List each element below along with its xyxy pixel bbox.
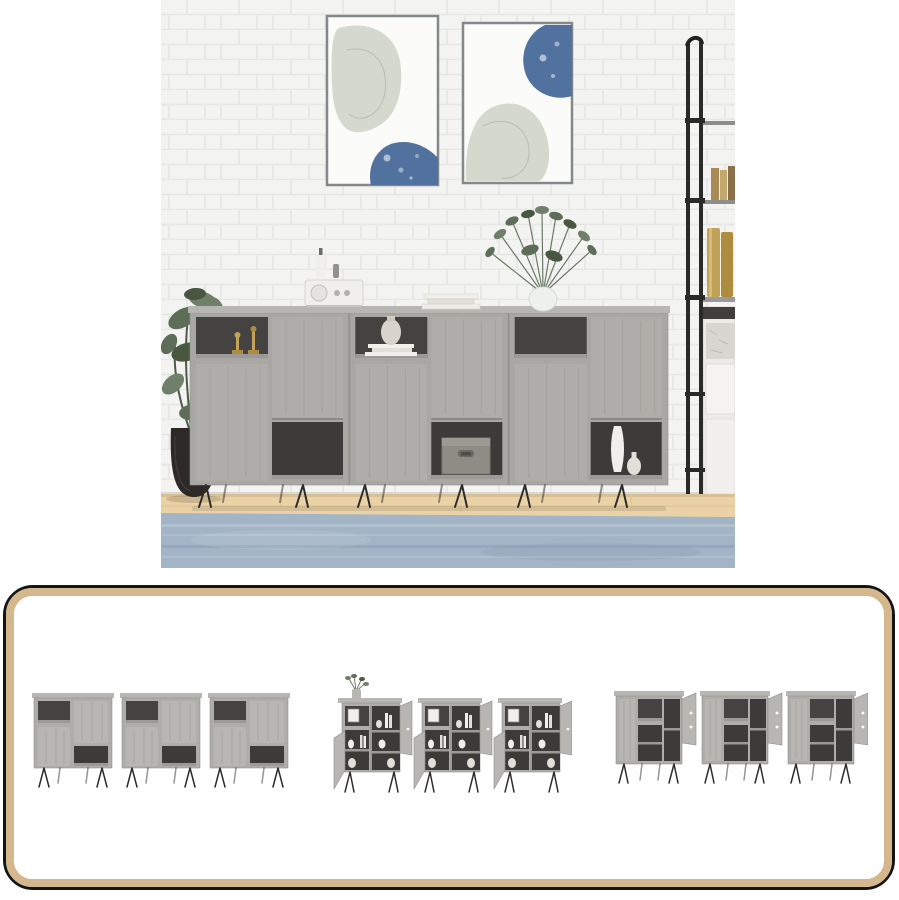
white-drawer-cabinet [703, 307, 735, 494]
book-stack [422, 294, 480, 309]
thumb-sideboards-closed-front[interactable] [30, 683, 292, 793]
brass-canisters [707, 228, 733, 297]
thumb-sideboards-open-styled[interactable] [332, 673, 572, 803]
shelf-books [711, 166, 735, 200]
thumbnail-row [6, 588, 892, 887]
sideboard-lifestyle-photo [161, 0, 735, 568]
wall-art-left [327, 16, 438, 185]
product-thumbnail-strip [3, 585, 895, 890]
blue-rug [161, 513, 735, 568]
wall-art-right [463, 23, 572, 183]
retro-radio [305, 280, 363, 307]
thumb-sideboards-open-empty[interactable] [612, 683, 868, 793]
storage-basket [442, 438, 490, 474]
